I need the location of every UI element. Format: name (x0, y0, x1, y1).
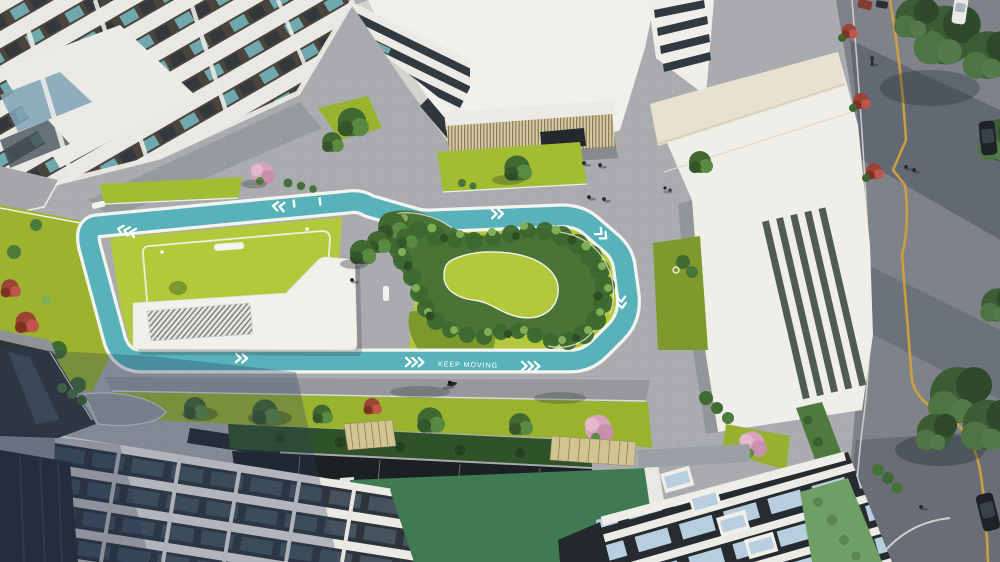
track-label: KEEP MOVING (438, 359, 498, 370)
bench-small (383, 286, 389, 301)
render-canvas: KEEP MOVING (0, 0, 1000, 562)
right-lawn-strip (653, 236, 708, 350)
aerial-courtyard-render: KEEP MOVING (0, 0, 1000, 562)
